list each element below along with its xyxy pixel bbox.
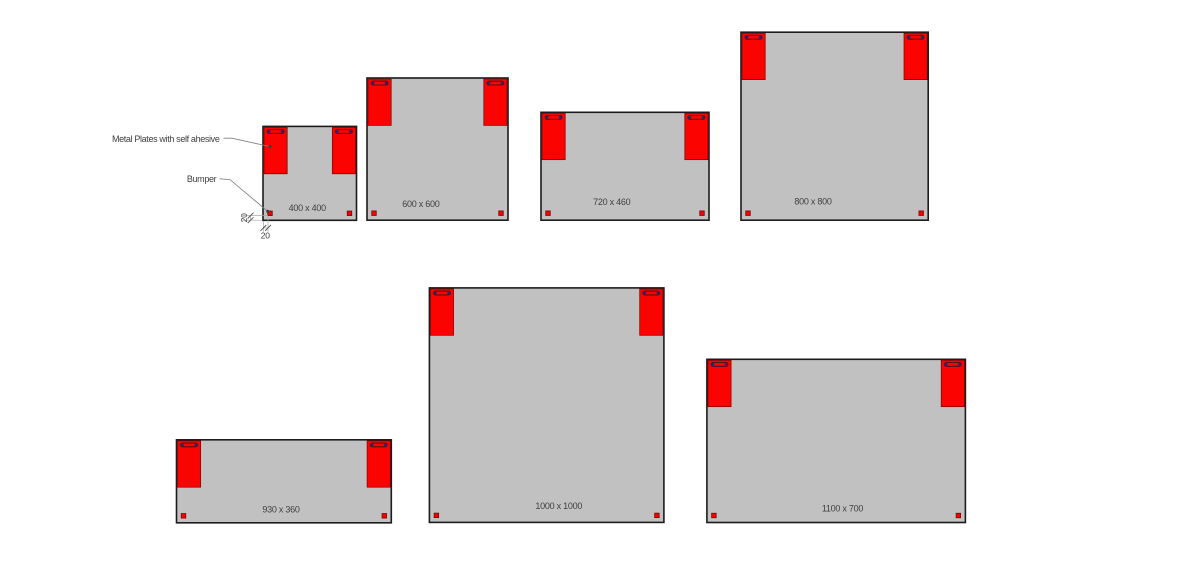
svg-text:20: 20 — [239, 213, 249, 223]
svg-text:Bumper: Bumper — [187, 174, 217, 184]
svg-text:930 x 360: 930 x 360 — [262, 504, 300, 514]
svg-text:1000 x 1000: 1000 x 1000 — [535, 501, 582, 511]
svg-text:600 x 600: 600 x 600 — [402, 199, 440, 209]
svg-text:800 x 800: 800 x 800 — [794, 197, 832, 207]
svg-text:1100 x 700: 1100 x 700 — [822, 504, 864, 514]
svg-text:400 x 400: 400 x 400 — [289, 203, 327, 213]
svg-text:720 x 460: 720 x 460 — [593, 197, 631, 207]
svg-text:Metal Plates with self ahesive: Metal Plates with self ahesive — [112, 134, 220, 144]
svg-text:20: 20 — [261, 231, 271, 241]
